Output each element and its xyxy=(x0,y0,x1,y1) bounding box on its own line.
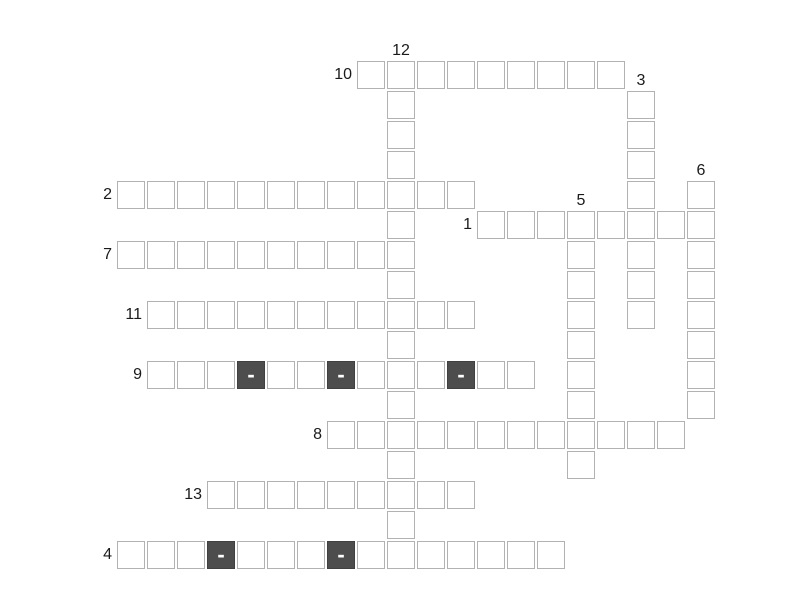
answer-cell[interactable] xyxy=(477,541,505,569)
hyphen-cell: - xyxy=(207,541,235,569)
answer-cell[interactable] xyxy=(147,541,175,569)
answer-cell[interactable] xyxy=(387,181,415,209)
answer-cell[interactable] xyxy=(567,301,595,329)
answer-cell[interactable] xyxy=(567,451,595,479)
answer-cell[interactable] xyxy=(687,211,715,239)
clue-number-8: 8 xyxy=(288,426,322,444)
answer-cell[interactable] xyxy=(627,181,655,209)
answer-cell[interactable] xyxy=(507,421,535,449)
answer-cell[interactable] xyxy=(567,421,595,449)
answer-cell[interactable] xyxy=(267,361,295,389)
answer-cell[interactable] xyxy=(387,271,415,299)
answer-cell[interactable] xyxy=(687,301,715,329)
answer-cell[interactable] xyxy=(567,61,595,89)
answer-cell[interactable] xyxy=(507,61,535,89)
answer-cell[interactable] xyxy=(177,181,205,209)
answer-cell[interactable] xyxy=(597,211,625,239)
answer-cell[interactable] xyxy=(147,241,175,269)
answer-cell[interactable] xyxy=(537,211,565,239)
clue-number-11: 11 xyxy=(108,306,142,324)
answer-cell[interactable] xyxy=(447,181,475,209)
answer-cell[interactable] xyxy=(297,181,325,209)
answer-cell[interactable] xyxy=(297,301,325,329)
answer-cell[interactable] xyxy=(417,361,445,389)
answer-cell[interactable] xyxy=(387,361,415,389)
answer-cell[interactable] xyxy=(597,61,625,89)
answer-cell[interactable] xyxy=(267,301,295,329)
answer-cell[interactable] xyxy=(477,211,505,239)
answer-cell[interactable] xyxy=(147,181,175,209)
answer-cell[interactable] xyxy=(597,421,625,449)
answer-cell[interactable] xyxy=(387,421,415,449)
answer-cell[interactable] xyxy=(387,331,415,359)
answer-cell[interactable] xyxy=(387,61,415,89)
answer-cell[interactable] xyxy=(237,181,265,209)
clue-number-13: 13 xyxy=(168,486,202,504)
answer-cell[interactable] xyxy=(567,241,595,269)
answer-cell[interactable] xyxy=(387,511,415,539)
clue-number-9: 9 xyxy=(108,366,142,384)
answer-cell[interactable] xyxy=(357,301,385,329)
hyphen-cell: - xyxy=(447,361,475,389)
answer-cell[interactable] xyxy=(657,421,685,449)
answer-cell[interactable] xyxy=(207,361,235,389)
answer-cell[interactable] xyxy=(387,391,415,419)
answer-cell[interactable] xyxy=(417,301,445,329)
answer-cell[interactable] xyxy=(177,301,205,329)
answer-cell[interactable] xyxy=(237,541,265,569)
answer-cell[interactable] xyxy=(387,301,415,329)
answer-cell[interactable] xyxy=(387,151,415,179)
hyphen-cell: - xyxy=(327,541,355,569)
answer-cell[interactable] xyxy=(657,211,685,239)
answer-cell[interactable] xyxy=(567,331,595,359)
answer-cell[interactable] xyxy=(297,481,325,509)
answer-cell[interactable] xyxy=(567,271,595,299)
answer-cell[interactable] xyxy=(687,241,715,269)
answer-cell[interactable] xyxy=(537,61,565,89)
answer-cell[interactable] xyxy=(207,301,235,329)
answer-cell[interactable] xyxy=(507,211,535,239)
clue-number-2: 2 xyxy=(78,186,112,204)
answer-cell[interactable] xyxy=(207,181,235,209)
answer-cell[interactable] xyxy=(267,481,295,509)
answer-cell[interactable] xyxy=(327,481,355,509)
hyphen-cell: - xyxy=(237,361,265,389)
answer-cell[interactable] xyxy=(177,241,205,269)
answer-cell[interactable] xyxy=(297,241,325,269)
answer-cell[interactable] xyxy=(627,151,655,179)
answer-cell[interactable] xyxy=(567,211,595,239)
crossword-grid: 1012326157119---8134-- xyxy=(0,0,800,600)
answer-cell[interactable] xyxy=(687,391,715,419)
answer-cell[interactable] xyxy=(417,481,445,509)
answer-cell[interactable] xyxy=(687,361,715,389)
answer-cell[interactable] xyxy=(177,361,205,389)
answer-cell[interactable] xyxy=(627,91,655,119)
answer-cell[interactable] xyxy=(477,421,505,449)
answer-cell[interactable] xyxy=(627,121,655,149)
clue-number-10: 10 xyxy=(318,66,352,84)
answer-cell[interactable] xyxy=(627,211,655,239)
answer-cell[interactable] xyxy=(447,541,475,569)
answer-cell[interactable] xyxy=(627,241,655,269)
answer-cell[interactable] xyxy=(387,481,415,509)
answer-cell[interactable] xyxy=(687,181,715,209)
answer-cell[interactable] xyxy=(207,241,235,269)
answer-cell[interactable] xyxy=(627,271,655,299)
answer-cell[interactable] xyxy=(357,421,385,449)
answer-cell[interactable] xyxy=(387,121,415,149)
answer-cell[interactable] xyxy=(327,421,355,449)
answer-cell[interactable] xyxy=(117,541,145,569)
answer-cell[interactable] xyxy=(237,241,265,269)
answer-cell[interactable] xyxy=(357,61,385,89)
answer-cell[interactable] xyxy=(267,181,295,209)
answer-cell[interactable] xyxy=(387,451,415,479)
clue-number-6: 6 xyxy=(687,162,715,180)
answer-cell[interactable] xyxy=(117,181,145,209)
answer-cell[interactable] xyxy=(177,541,205,569)
answer-cell[interactable] xyxy=(417,421,445,449)
clue-number-5: 5 xyxy=(567,192,595,210)
answer-cell[interactable] xyxy=(627,421,655,449)
answer-cell[interactable] xyxy=(417,61,445,89)
answer-cell[interactable] xyxy=(147,361,175,389)
answer-cell[interactable] xyxy=(207,481,235,509)
clue-number-4: 4 xyxy=(78,546,112,564)
answer-cell[interactable] xyxy=(477,361,505,389)
answer-cell[interactable] xyxy=(447,421,475,449)
answer-cell[interactable] xyxy=(687,271,715,299)
clue-number-7: 7 xyxy=(78,246,112,264)
hyphen-cell: - xyxy=(327,361,355,389)
answer-cell[interactable] xyxy=(357,361,385,389)
answer-cell[interactable] xyxy=(477,61,505,89)
answer-cell[interactable] xyxy=(417,181,445,209)
answer-cell[interactable] xyxy=(327,181,355,209)
answer-cell[interactable] xyxy=(117,241,145,269)
answer-cell[interactable] xyxy=(237,301,265,329)
answer-cell[interactable] xyxy=(357,541,385,569)
answer-cell[interactable] xyxy=(417,541,445,569)
answer-cell[interactable] xyxy=(267,541,295,569)
answer-cell[interactable] xyxy=(387,241,415,269)
answer-cell[interactable] xyxy=(387,211,415,239)
answer-cell[interactable] xyxy=(357,181,385,209)
answer-cell[interactable] xyxy=(147,301,175,329)
answer-cell[interactable] xyxy=(237,481,265,509)
answer-cell[interactable] xyxy=(387,91,415,119)
answer-cell[interactable] xyxy=(567,391,595,419)
answer-cell[interactable] xyxy=(327,241,355,269)
answer-cell[interactable] xyxy=(357,481,385,509)
answer-cell[interactable] xyxy=(507,541,535,569)
answer-cell[interactable] xyxy=(447,301,475,329)
answer-cell[interactable] xyxy=(687,331,715,359)
answer-cell[interactable] xyxy=(267,241,295,269)
answer-cell[interactable] xyxy=(387,541,415,569)
answer-cell[interactable] xyxy=(507,361,535,389)
answer-cell[interactable] xyxy=(297,541,325,569)
answer-cell[interactable] xyxy=(357,241,385,269)
answer-cell[interactable] xyxy=(627,301,655,329)
clue-number-12: 12 xyxy=(387,42,415,60)
answer-cell[interactable] xyxy=(567,361,595,389)
answer-cell[interactable] xyxy=(537,541,565,569)
clue-number-3: 3 xyxy=(627,72,655,90)
answer-cell[interactable] xyxy=(537,421,565,449)
answer-cell[interactable] xyxy=(447,61,475,89)
clue-number-1: 1 xyxy=(438,216,472,234)
answer-cell[interactable] xyxy=(297,361,325,389)
answer-cell[interactable] xyxy=(327,301,355,329)
answer-cell[interactable] xyxy=(447,481,475,509)
